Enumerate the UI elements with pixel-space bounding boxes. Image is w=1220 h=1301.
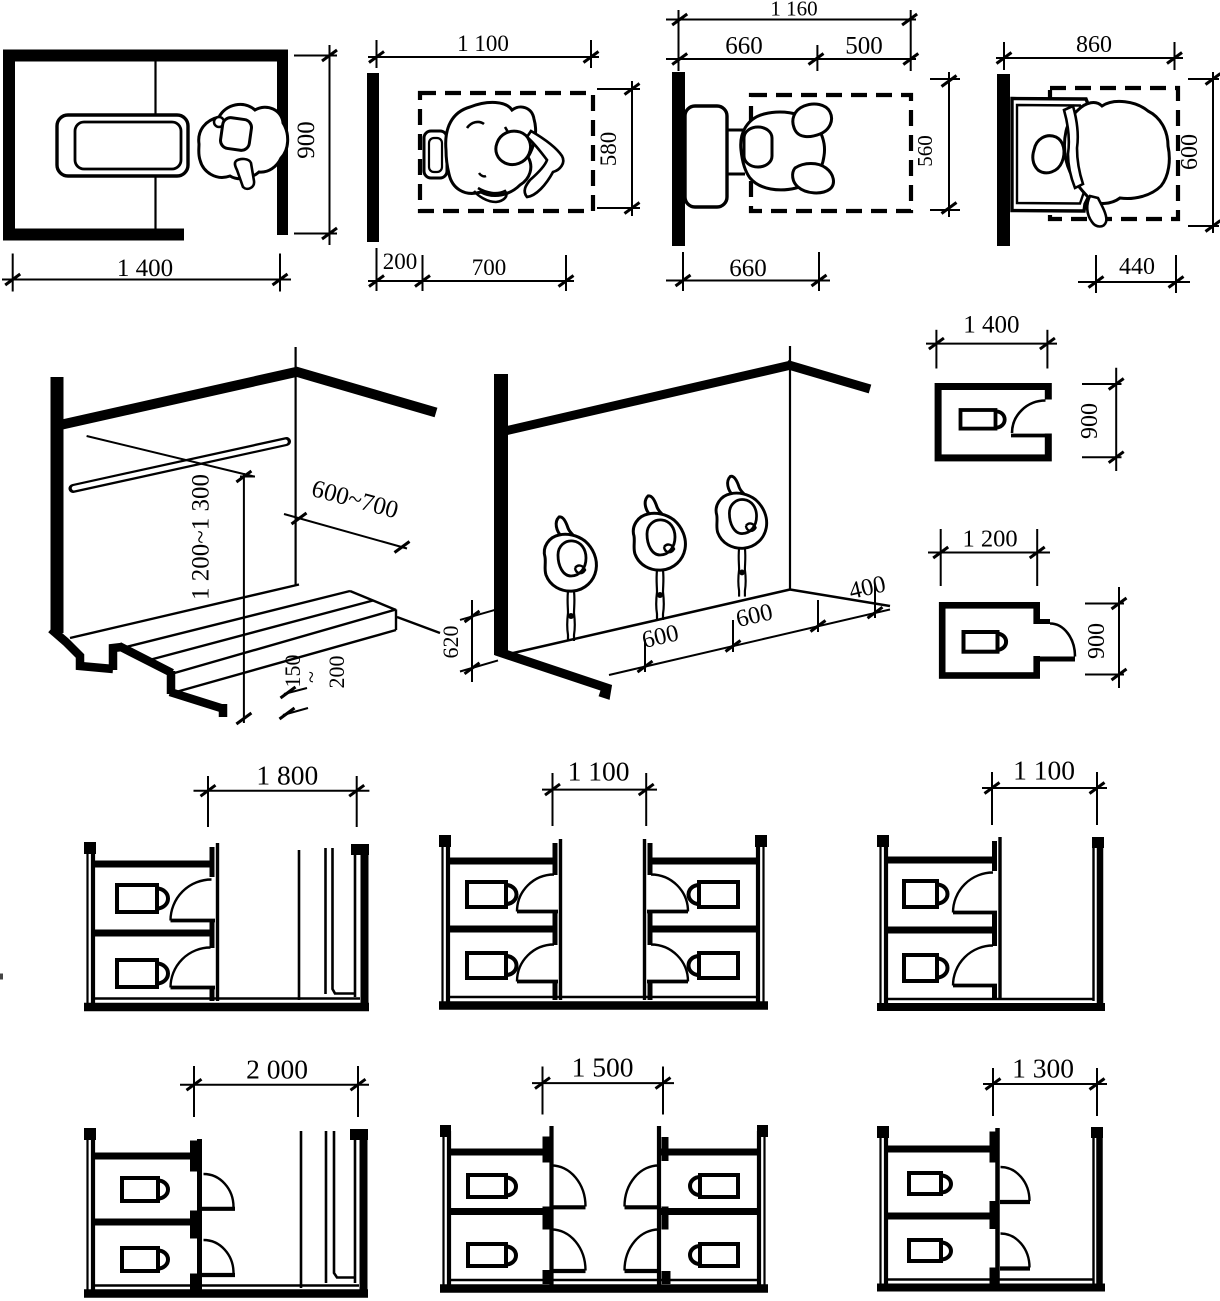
svg-text:1 300: 1 300 <box>1012 1053 1074 1084</box>
svg-text:440: 440 <box>1119 254 1155 280</box>
svg-text:1 200: 1 200 <box>962 526 1017 553</box>
svg-text:580: 580 <box>596 132 621 167</box>
svg-text:560: 560 <box>913 135 937 167</box>
svg-text:1 100: 1 100 <box>1013 755 1075 786</box>
svg-text:860: 860 <box>1076 32 1112 58</box>
svg-text:1 160: 1 160 <box>770 0 817 21</box>
svg-text:200: 200 <box>324 656 349 689</box>
svg-text:1 200~1 300: 1 200~1 300 <box>188 474 215 600</box>
svg-text:1 100: 1 100 <box>457 31 509 56</box>
svg-text:900: 900 <box>1084 623 1110 659</box>
svg-text:660: 660 <box>725 33 763 60</box>
svg-text:660: 660 <box>729 255 767 282</box>
svg-text:1 100: 1 100 <box>568 756 630 787</box>
svg-text:900: 900 <box>293 121 320 159</box>
svg-text:1 400: 1 400 <box>963 312 1019 339</box>
svg-text:600: 600 <box>1177 134 1203 170</box>
svg-text:1 400: 1 400 <box>117 255 173 282</box>
svg-text:1 500: 1 500 <box>572 1052 634 1083</box>
svg-text:900: 900 <box>1077 403 1103 439</box>
svg-text:700: 700 <box>472 255 507 280</box>
svg-text:1 800: 1 800 <box>256 760 318 791</box>
svg-text:2 000: 2 000 <box>246 1054 308 1085</box>
svg-text:200: 200 <box>383 249 418 274</box>
svg-text:~: ~ <box>299 671 324 683</box>
svg-text:620: 620 <box>438 626 463 659</box>
svg-text:500: 500 <box>845 33 883 60</box>
